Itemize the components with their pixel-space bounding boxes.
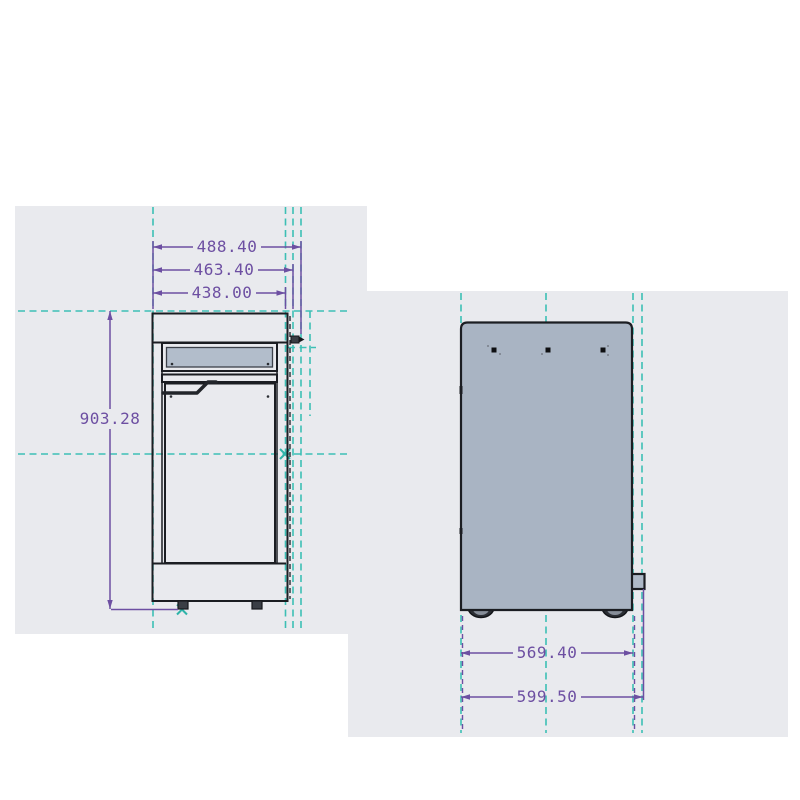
back-panel bbox=[461, 323, 632, 611]
dim-front-width-body: 463.40 bbox=[194, 262, 255, 278]
front-rail bbox=[162, 375, 277, 383]
cad-canvas: 488.40 463.40 438.00 903.28 569.40 599.5… bbox=[0, 0, 800, 800]
back-view bbox=[460, 323, 645, 618]
front-foot-left bbox=[178, 601, 188, 609]
technical-drawing bbox=[0, 0, 800, 800]
dim-back-width-overall: 599.50 bbox=[517, 689, 578, 705]
front-lid bbox=[153, 314, 288, 343]
dim-front-width-door: 438.00 bbox=[192, 285, 253, 301]
front-foot-right bbox=[252, 601, 262, 609]
front-view bbox=[153, 314, 305, 610]
front-latch-knob bbox=[291, 336, 305, 343]
front-drawer-recess bbox=[167, 348, 273, 368]
dim-front-width-overall: 488.40 bbox=[197, 239, 258, 255]
front-door bbox=[165, 384, 275, 564]
dim-back-width-wheelbase: 569.40 bbox=[517, 645, 578, 661]
dim-front-height: 903.28 bbox=[80, 411, 141, 427]
